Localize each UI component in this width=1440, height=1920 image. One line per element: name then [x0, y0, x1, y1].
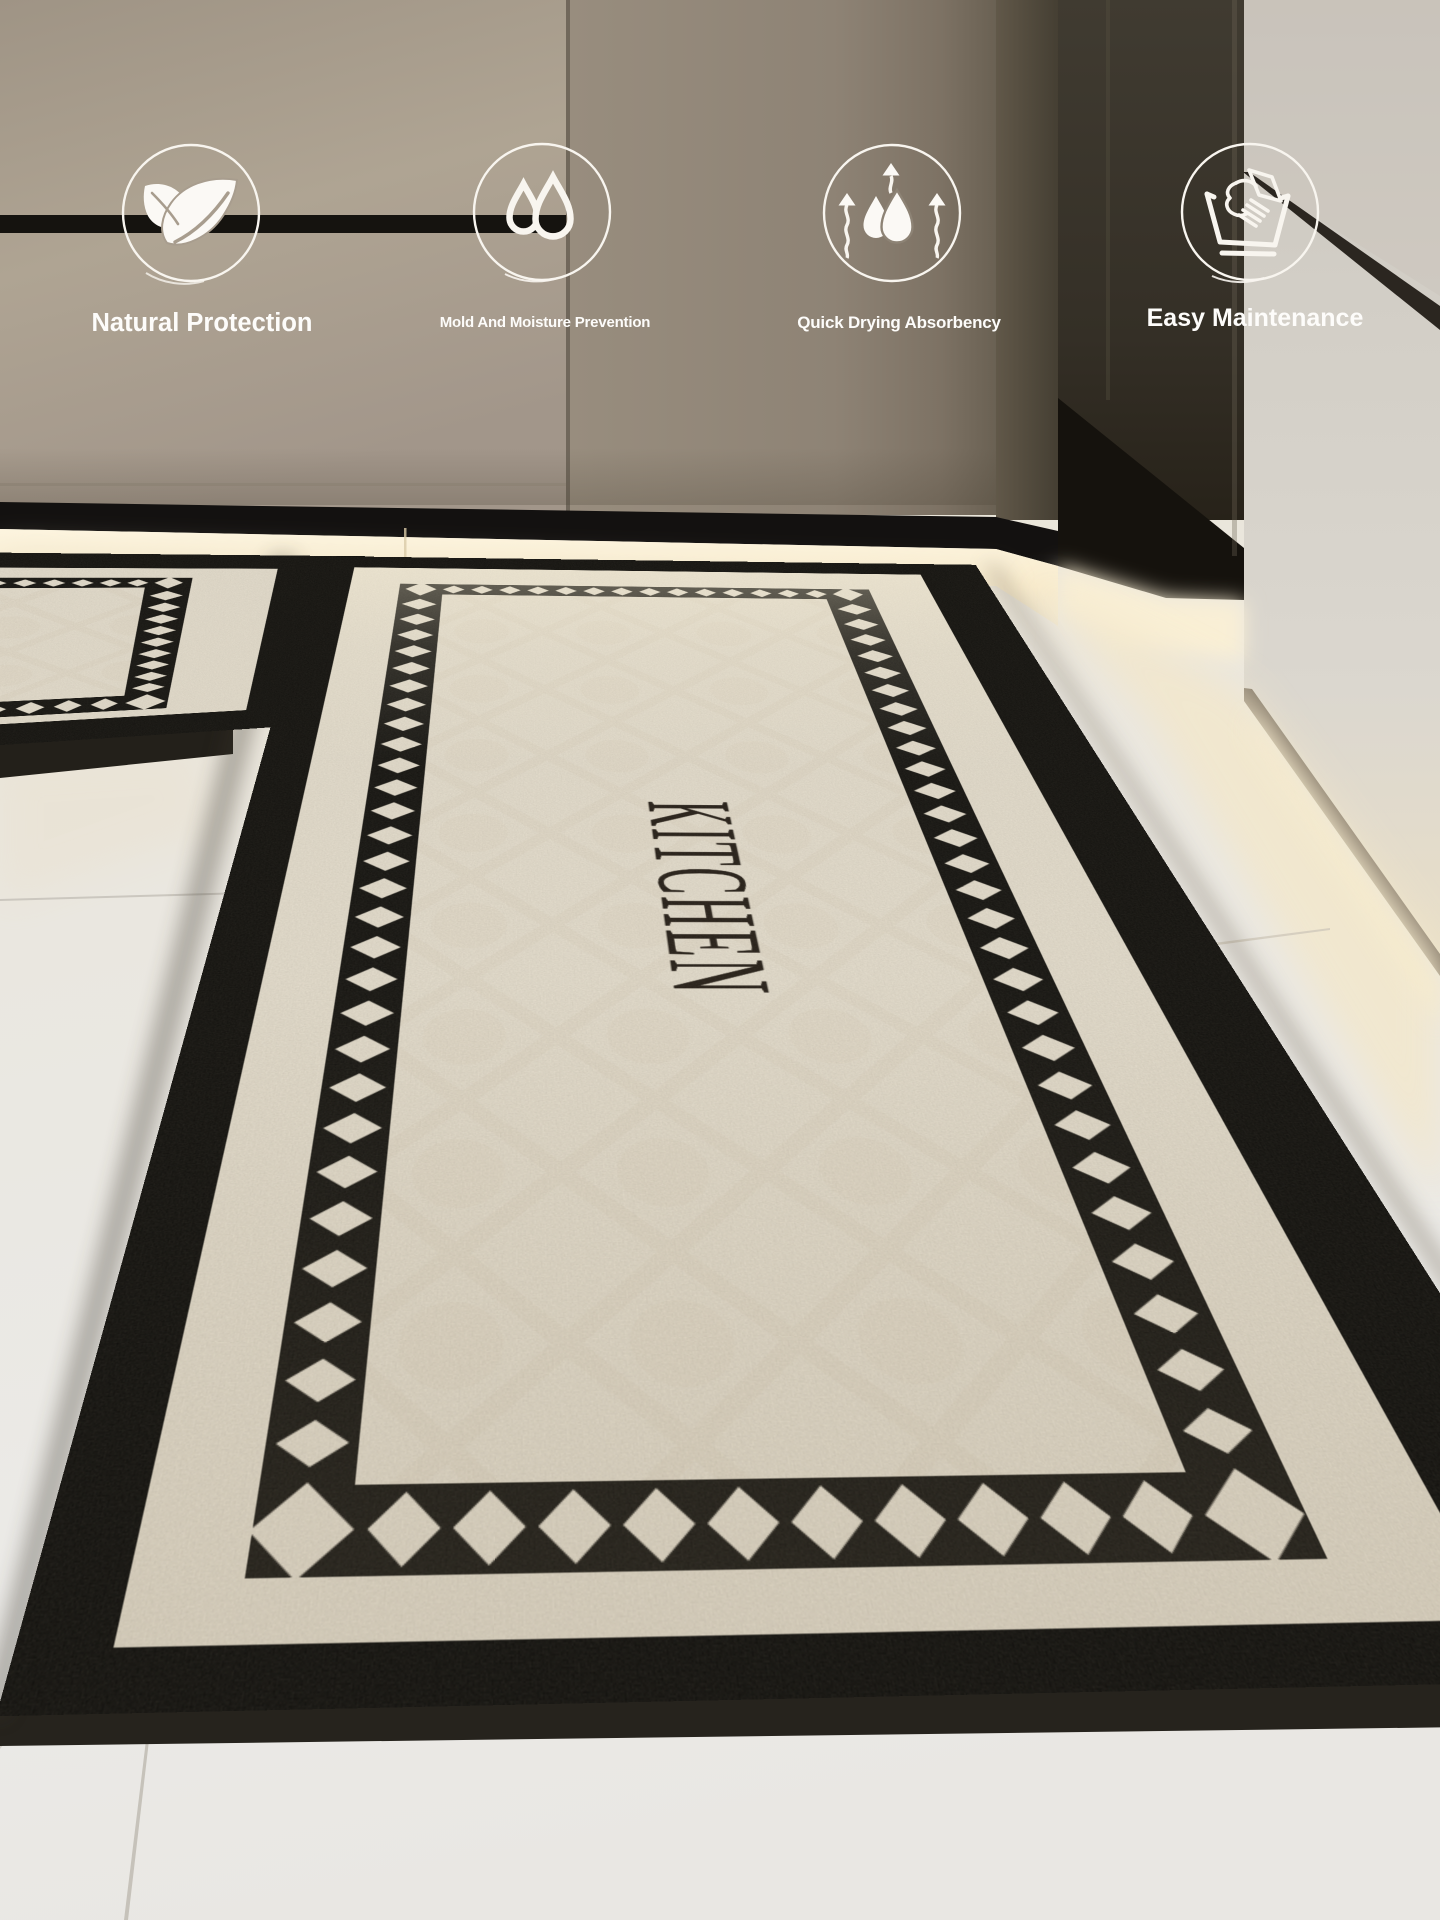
svg-text:Easy Maintenance: Easy Maintenance	[1147, 304, 1364, 332]
svg-text:Mold And Moisture Prevention: Mold And Moisture Prevention	[440, 314, 651, 331]
svg-text:Quick Drying Absorbency: Quick Drying Absorbency	[797, 313, 1001, 332]
svg-text:Natural Protection: Natural Protection	[91, 309, 312, 337]
